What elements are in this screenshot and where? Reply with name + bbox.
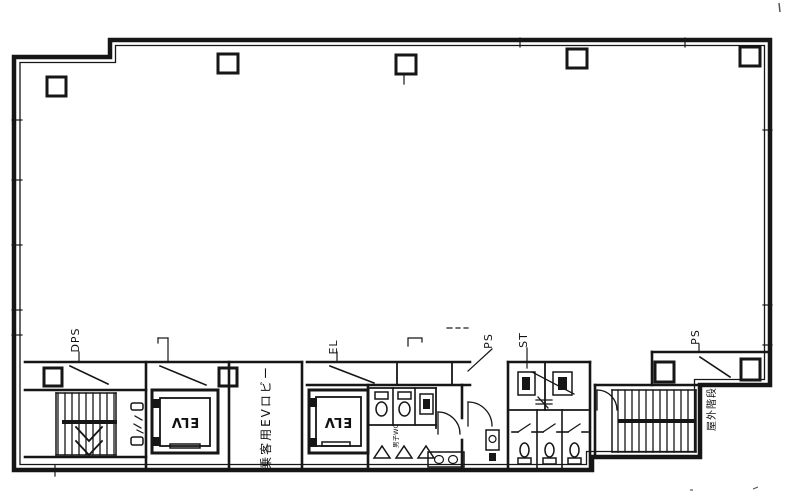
elevator-rail-block [310, 398, 317, 407]
label-elevator-left: ELV [171, 414, 199, 429]
label-elevator-right: ELV [324, 414, 352, 429]
label-elevator-lobby: 乗客用EVロビー [258, 365, 273, 469]
outer-wall-line [14, 40, 770, 470]
stair-landing-bar [62, 420, 117, 424]
label-ps-right: PS [689, 329, 702, 345]
column [655, 362, 674, 382]
column [44, 368, 62, 386]
label-outdoor-stairs: 屋外階段 [705, 387, 718, 431]
label-dps: DPS [69, 327, 82, 352]
column [396, 55, 416, 74]
elevator-rail-block [153, 399, 160, 408]
stair-landing-bar [618, 419, 696, 423]
elevator-rail-block [310, 438, 317, 447]
label-el: EL [327, 339, 340, 354]
floor-plan-page: DPS EL PS ST PS ELV ELV 乗客用EVロビー 屋外階段 男子… [0, 0, 787, 495]
label-st: ST [517, 332, 530, 348]
outer-walls [12, 38, 772, 476]
column [218, 54, 238, 73]
column [740, 47, 760, 66]
stairwell-right [597, 390, 696, 452]
label-ps-center: PS [482, 333, 495, 349]
column [47, 77, 66, 96]
elevator-rail-block [153, 437, 160, 446]
floor-plan-drawing: DPS EL PS ST PS ELV ELV 乗客用EVロビー 屋外階段 男子… [0, 0, 787, 495]
label-mens-wc: 男子WC [392, 424, 400, 448]
column [741, 359, 760, 380]
column [567, 49, 587, 68]
